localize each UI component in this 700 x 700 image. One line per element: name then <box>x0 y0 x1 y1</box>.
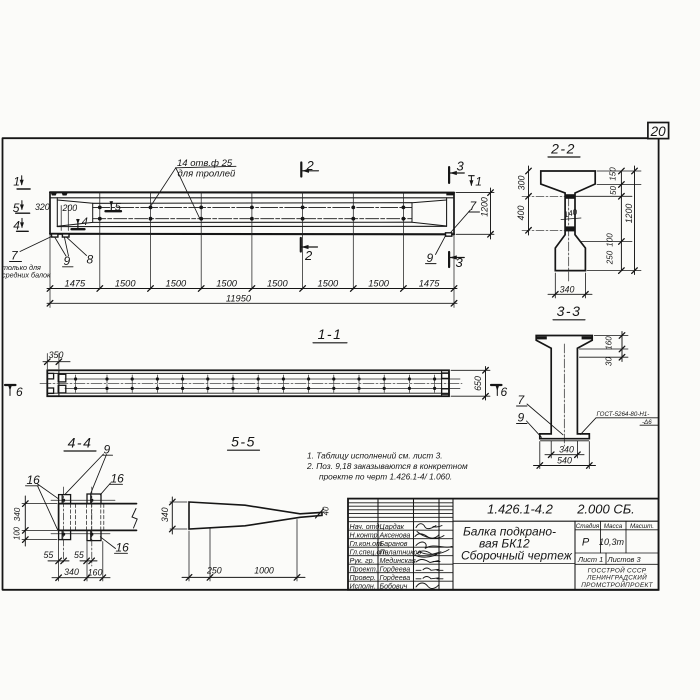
svg-text:250: 250 <box>206 566 222 576</box>
svg-text:50: 50 <box>609 186 618 195</box>
svg-text:2: 2 <box>304 248 313 263</box>
svg-text:5: 5 <box>115 201 122 213</box>
svg-text:Н.контр.: Н.контр. <box>350 531 380 539</box>
svg-text:Лист 1: Лист 1 <box>577 555 603 564</box>
svg-text:ГОСТ-5264-80-Н1-: ГОСТ-5264-80-Н1- <box>597 411 650 418</box>
svg-text:1475: 1475 <box>419 278 441 288</box>
svg-text:9: 9 <box>64 254 71 268</box>
svg-text:ПРОМСТРОЙПРОЕКТ: ПРОМСТРОЙПРОЕКТ <box>581 580 653 589</box>
svg-text:340: 340 <box>560 285 575 295</box>
svg-text:средних балок: средних балок <box>2 271 51 280</box>
svg-text:1: 1 <box>13 174 20 188</box>
svg-text:Бобович: Бобович <box>380 582 408 590</box>
svg-text:160: 160 <box>605 336 614 350</box>
svg-text:4: 4 <box>82 216 88 228</box>
svg-text:16: 16 <box>116 540 130 554</box>
svg-text:16: 16 <box>111 471 125 485</box>
svg-text:340: 340 <box>12 507 22 521</box>
svg-text:10,3т: 10,3т <box>599 537 625 547</box>
svg-text:1500: 1500 <box>115 278 137 288</box>
svg-text:6: 6 <box>501 385 508 399</box>
svg-text:4-4: 4-4 <box>68 435 93 451</box>
svg-text:проекте по черт 1.426.1-4/ 1.0: проекте по черт 1.426.1-4/ 1.060. <box>319 471 452 481</box>
svg-text:Мединская: Мединская <box>380 557 416 565</box>
svg-text:1475: 1475 <box>65 278 87 288</box>
svg-text:Нач. отд: Нач. отд <box>350 523 380 531</box>
svg-text:540: 540 <box>557 455 572 465</box>
svg-text:2. Поз. 9,18 заказываются в ко: 2. Поз. 9,18 заказываются в конкретном <box>306 461 468 471</box>
svg-text:3: 3 <box>457 159 465 174</box>
svg-text:2-2: 2-2 <box>550 141 576 157</box>
svg-text:100: 100 <box>13 526 22 540</box>
svg-text:Масшт.: Масшт. <box>630 523 654 530</box>
svg-text:9: 9 <box>104 442 111 456</box>
svg-text:Баранов: Баранов <box>380 540 408 548</box>
svg-text:Рук. гр.: Рук. гр. <box>350 557 375 565</box>
svg-text:для троллей: для троллей <box>178 168 236 179</box>
svg-text:1200: 1200 <box>480 197 490 217</box>
svg-text:9: 9 <box>427 251 434 265</box>
svg-text:160: 160 <box>88 568 103 578</box>
svg-text:55: 55 <box>44 550 54 560</box>
svg-text:1.426.1-4.2: 1.426.1-4.2 <box>487 502 554 517</box>
svg-text:2.000 СБ.: 2.000 СБ. <box>576 502 635 517</box>
svg-text:30: 30 <box>605 357 614 366</box>
svg-text:Цардак: Цардак <box>380 523 405 531</box>
svg-text:1500: 1500 <box>166 278 188 288</box>
svg-text:Р: Р <box>582 537 590 549</box>
svg-text:6: 6 <box>16 385 23 399</box>
svg-text:1: 1 <box>475 174 482 188</box>
svg-text:1500: 1500 <box>368 278 390 288</box>
svg-text:1-1: 1-1 <box>318 326 343 342</box>
svg-text:Сборочный чертеж: Сборочный чертеж <box>461 549 573 563</box>
svg-text:1200: 1200 <box>624 204 634 224</box>
svg-text:3-3: 3-3 <box>557 303 582 319</box>
svg-text:ЛЕНИНГРАДСКИЙ: ЛЕНИНГРАДСКИЙ <box>586 573 647 582</box>
svg-text:-Δ6: -Δ6 <box>642 419 652 426</box>
svg-text:200: 200 <box>62 203 78 213</box>
svg-text:Гордеева: Гордеева <box>380 565 411 573</box>
svg-text:150: 150 <box>609 167 618 181</box>
svg-text:250: 250 <box>606 250 615 265</box>
svg-text:400: 400 <box>516 206 526 221</box>
svg-text:Аксенова: Аксенова <box>379 531 411 539</box>
svg-text:ГОССТРОЙ СССР: ГОССТРОЙ СССР <box>588 565 647 574</box>
svg-text:4: 4 <box>13 219 20 233</box>
svg-text:340: 340 <box>64 567 79 577</box>
svg-text:55: 55 <box>74 550 84 560</box>
svg-text:340: 340 <box>559 445 574 455</box>
svg-text:Гордеева: Гордеева <box>380 574 411 582</box>
svg-text:3: 3 <box>456 255 464 270</box>
svg-text:340: 340 <box>160 507 170 522</box>
svg-text:Исполн.: Исполн. <box>350 582 376 590</box>
svg-text:300: 300 <box>517 176 527 191</box>
svg-text:Листов 3: Листов 3 <box>607 555 642 564</box>
svg-text:2: 2 <box>306 158 315 173</box>
svg-text:40: 40 <box>322 506 331 515</box>
svg-text:320: 320 <box>35 202 50 212</box>
svg-text:1500: 1500 <box>216 278 238 288</box>
svg-text:Стадия: Стадия <box>576 522 600 530</box>
svg-text:Гл.кон.от: Гл.кон.от <box>350 540 383 548</box>
svg-text:11950: 11950 <box>226 293 252 303</box>
svg-text:20: 20 <box>650 124 667 139</box>
svg-text:Проект.: Проект. <box>350 565 378 573</box>
svg-text:5-5: 5-5 <box>231 434 256 450</box>
svg-text:9: 9 <box>518 411 525 425</box>
svg-text:8: 8 <box>87 253 94 267</box>
svg-text:100: 100 <box>606 233 615 247</box>
svg-text:1. Таблицу исполнений см. лис: 1. Таблицу исполнений см. лист 3. <box>307 450 443 460</box>
svg-text:Провер.: Провер. <box>350 574 376 582</box>
svg-text:1000: 1000 <box>254 566 274 576</box>
svg-text:1500: 1500 <box>267 278 289 288</box>
svg-text:650: 650 <box>473 376 483 391</box>
svg-text:Масса: Масса <box>604 523 623 530</box>
svg-text:1500: 1500 <box>318 278 340 288</box>
